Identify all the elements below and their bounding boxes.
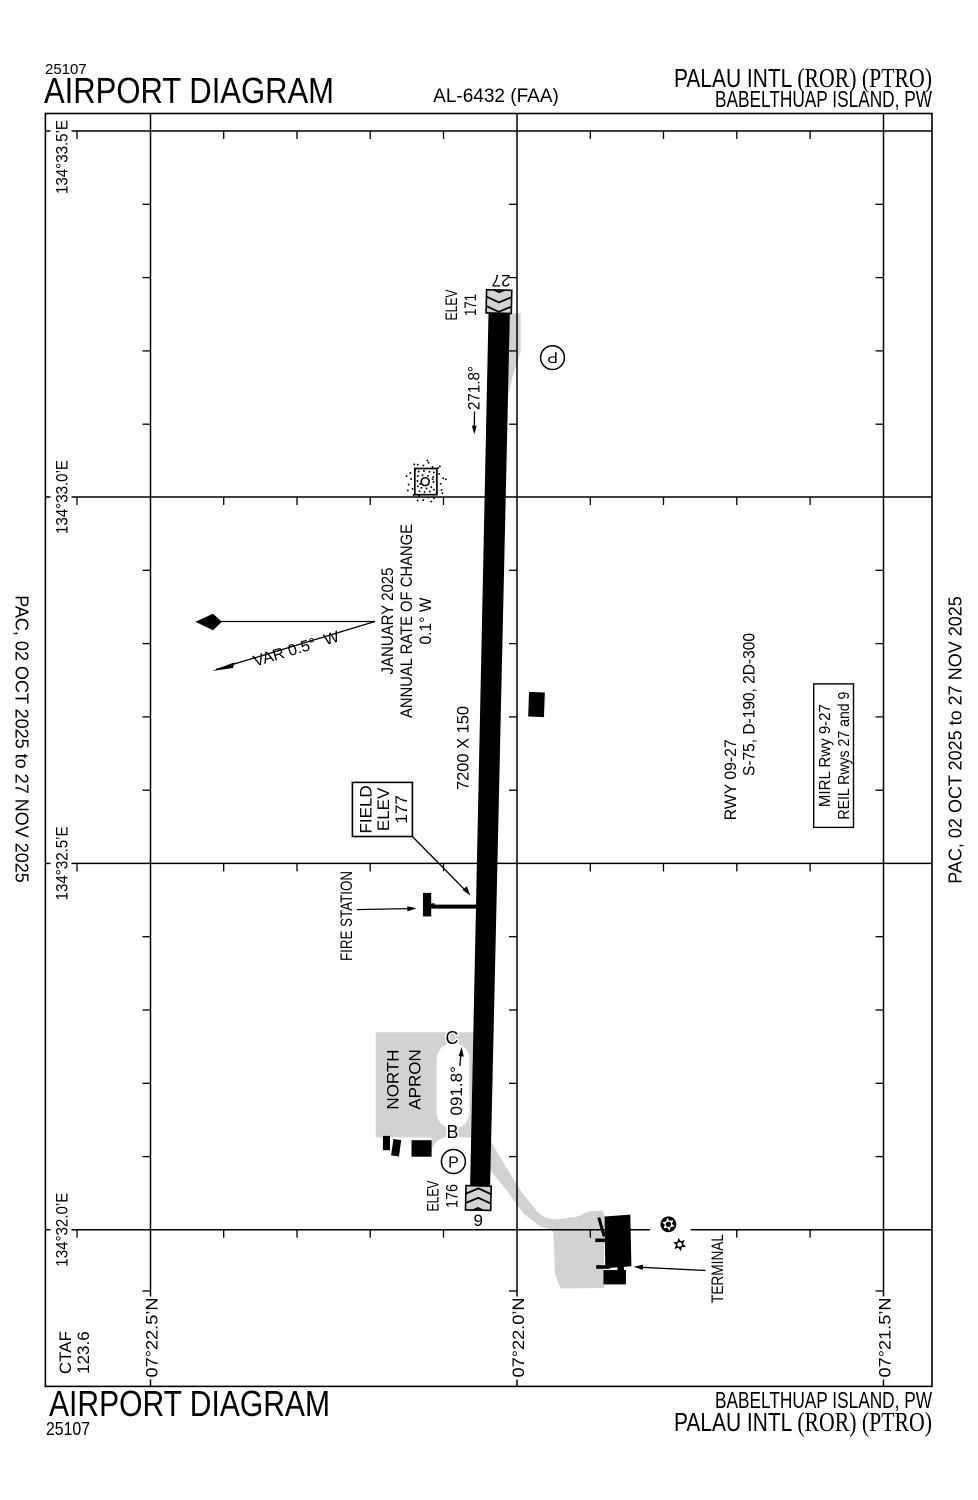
- svg-text:7200 X 150: 7200 X 150: [454, 706, 473, 790]
- svg-text:9: 9: [473, 1211, 482, 1230]
- svg-text:AL-6432 (FAA): AL-6432 (FAA): [433, 86, 559, 107]
- svg-text:134°32.5’E: 134°32.5’E: [53, 826, 72, 900]
- svg-text:271.8°: 271.8°: [465, 366, 484, 410]
- svg-text:AIRPORT DIAGRAM: AIRPORT DIAGRAM: [44, 70, 334, 111]
- svg-text:25107: 25107: [46, 1419, 90, 1439]
- svg-text:171: 171: [461, 294, 480, 316]
- svg-text:FIELD: FIELD: [356, 785, 375, 833]
- svg-text:RWY 09-27: RWY 09-27: [721, 739, 740, 820]
- svg-text:AIRPORT DIAGRAM: AIRPORT DIAGRAM: [49, 1383, 330, 1424]
- svg-text:07°22.5’N: 07°22.5’N: [143, 1298, 162, 1378]
- svg-text:APRON: APRON: [406, 1049, 425, 1109]
- svg-text:134°32.0’E: 134°32.0’E: [53, 1193, 72, 1267]
- svg-text:MIRL Rwy 9-27: MIRL Rwy 9-27: [817, 704, 834, 807]
- svg-text:134°33.0’E: 134°33.0’E: [53, 460, 72, 534]
- svg-text:VAR 0.5° W: VAR 0.5° W: [251, 628, 342, 670]
- svg-text:27: 27: [492, 271, 511, 290]
- svg-text:ELEV: ELEV: [442, 289, 461, 320]
- svg-text:B: B: [446, 1122, 458, 1142]
- svg-text:07°22.0’N: 07°22.0’N: [509, 1298, 528, 1378]
- svg-text:S-75, D-190, 2D-300: S-75, D-190, 2D-300: [739, 633, 758, 776]
- svg-text:177: 177: [392, 795, 411, 823]
- svg-text:PAC, 02 OCT 2025 to 27 NOV: PAC, 02 OCT 2025 to 27 NOV 2025: [12, 595, 32, 883]
- svg-text:PAC, 02 OCT 2025 to 27 NOV: PAC, 02 OCT 2025 to 27 NOV 2025: [946, 596, 966, 884]
- svg-text:PALAU INTL (ROR) (PTRO): PALAU INTL (ROR) (PTRO): [674, 1407, 932, 1437]
- svg-text:REIL Rwys 27 and 9: REIL Rwys 27 and 9: [836, 692, 853, 820]
- svg-text:134°33.5’E: 134°33.5’E: [53, 120, 72, 194]
- svg-text:P: P: [547, 348, 558, 365]
- svg-text:07°21.5’N: 07°21.5’N: [876, 1298, 895, 1378]
- svg-text:CTAF: CTAF: [56, 1331, 75, 1374]
- svg-text:P: P: [448, 1154, 459, 1171]
- svg-text:C: C: [446, 1028, 459, 1048]
- svg-text:ELEV: ELEV: [424, 1180, 443, 1211]
- svg-text:091.8°: 091.8°: [447, 1066, 466, 1115]
- svg-text:TERMINAL: TERMINAL: [708, 1234, 727, 1303]
- svg-text:JANUARY 2025: JANUARY 2025: [378, 568, 397, 675]
- svg-text:176: 176: [443, 1184, 462, 1208]
- svg-text:ELEV: ELEV: [374, 787, 393, 831]
- svg-text:BABELTHUAP ISLAND, PW: BABELTHUAP ISLAND, PW: [715, 86, 932, 112]
- svg-text:123.6: 123.6: [74, 1331, 93, 1374]
- svg-text:0.1° W: 0.1° W: [416, 598, 435, 645]
- svg-text:NORTH: NORTH: [384, 1049, 403, 1109]
- svg-text:ANNUAL RATE OF CHANGE: ANNUAL RATE OF CHANGE: [397, 524, 416, 718]
- svg-text:FIRE STATION: FIRE STATION: [337, 871, 356, 961]
